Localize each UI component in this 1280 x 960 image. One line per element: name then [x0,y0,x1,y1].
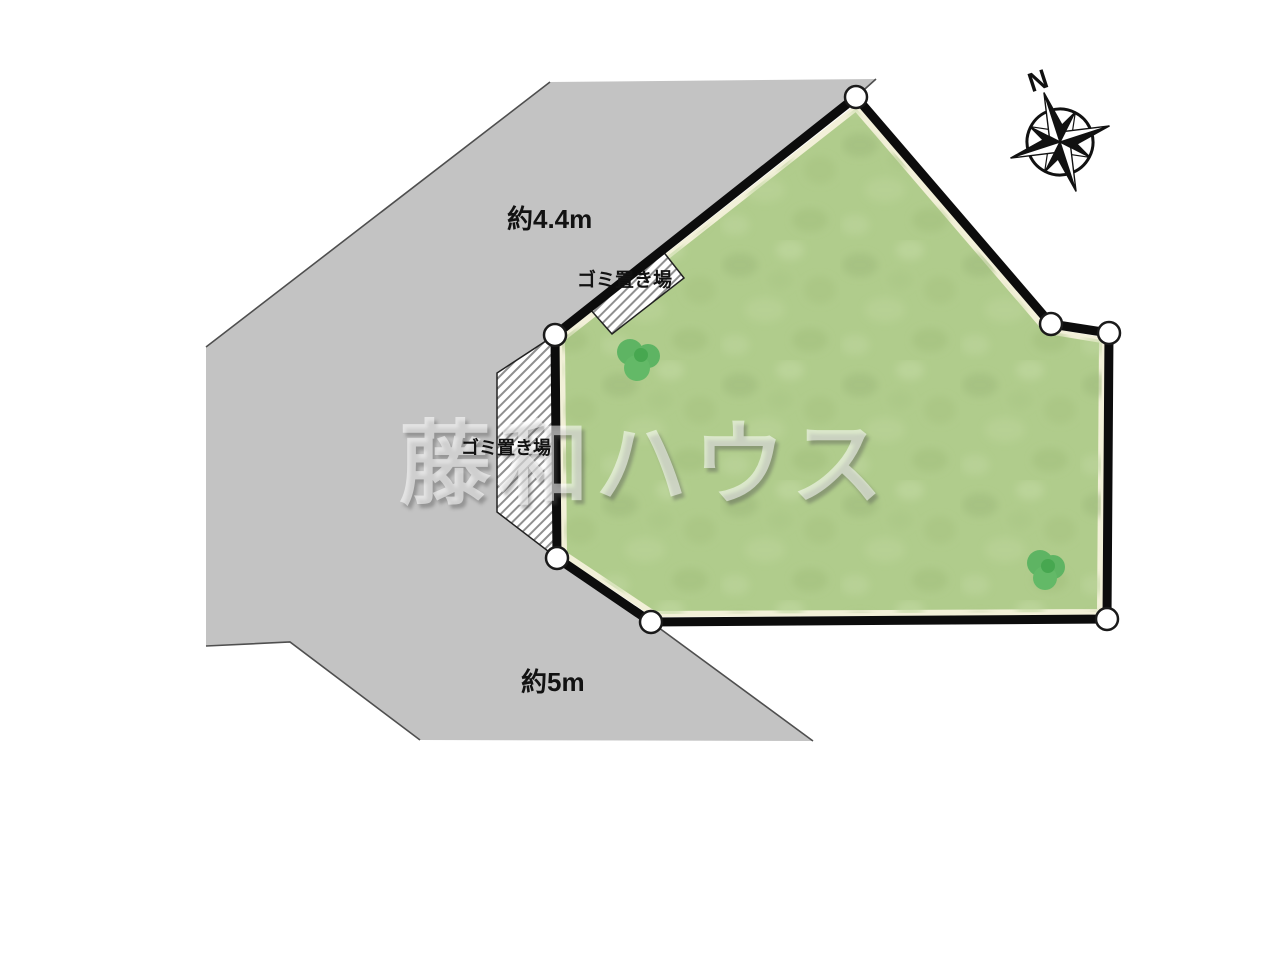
vertex-marker [544,324,566,346]
garbage-area-label-left: ゴミ置き場 [461,439,551,459]
vertex-marker [546,547,568,569]
vertex-marker [640,611,662,633]
road-width-label-top: 約4.4m [507,205,592,234]
road-width-label-bottom: 約5m [521,668,585,697]
watermark: 藤和ハウス [399,419,889,511]
garbage-area-label-top: ゴミ置き場 [577,271,672,292]
compass-north-label: N [1024,64,1052,99]
vertex-marker [845,86,867,108]
vertex-marker [1096,608,1118,630]
vertex-marker [1040,313,1062,335]
compass-rose-icon: N [986,50,1126,208]
site-plan-page: N 藤和ハウス 約4.4m ゴミ置き場 ゴミ置き場 約5m [0,0,1280,960]
vertex-marker [1098,322,1120,344]
